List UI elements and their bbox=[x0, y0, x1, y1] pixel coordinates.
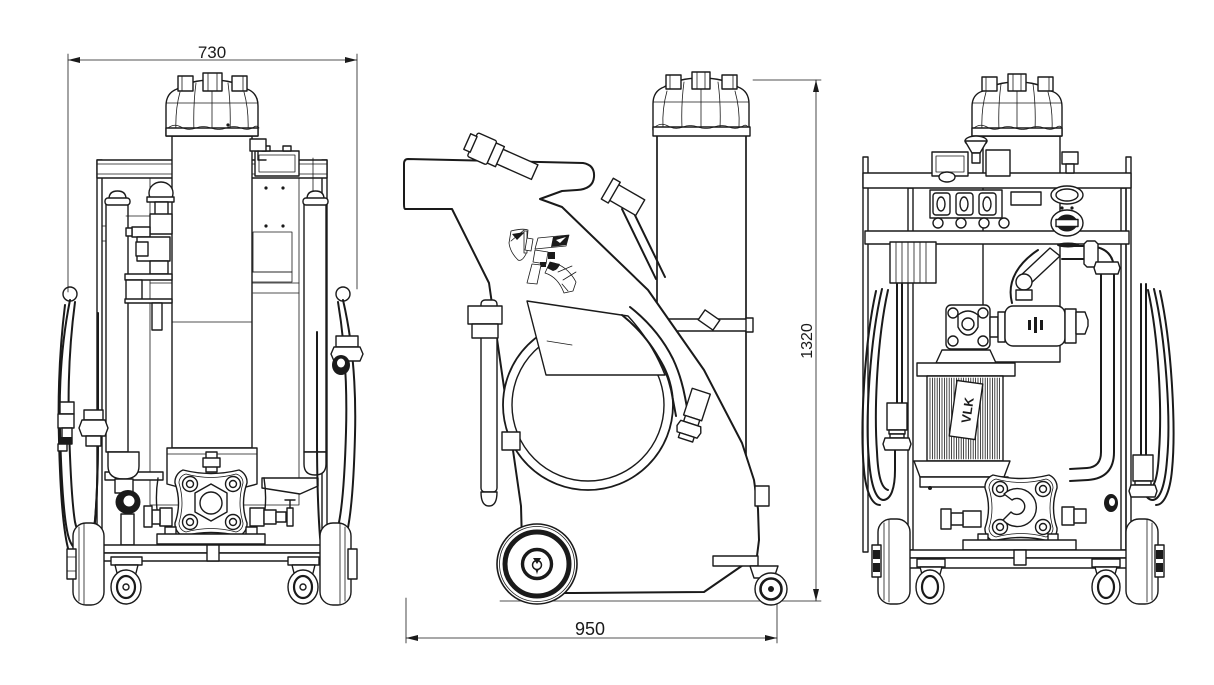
svg-text:730: 730 bbox=[198, 43, 226, 62]
svg-text:950: 950 bbox=[575, 619, 605, 639]
svg-text:1320: 1320 bbox=[799, 323, 816, 359]
